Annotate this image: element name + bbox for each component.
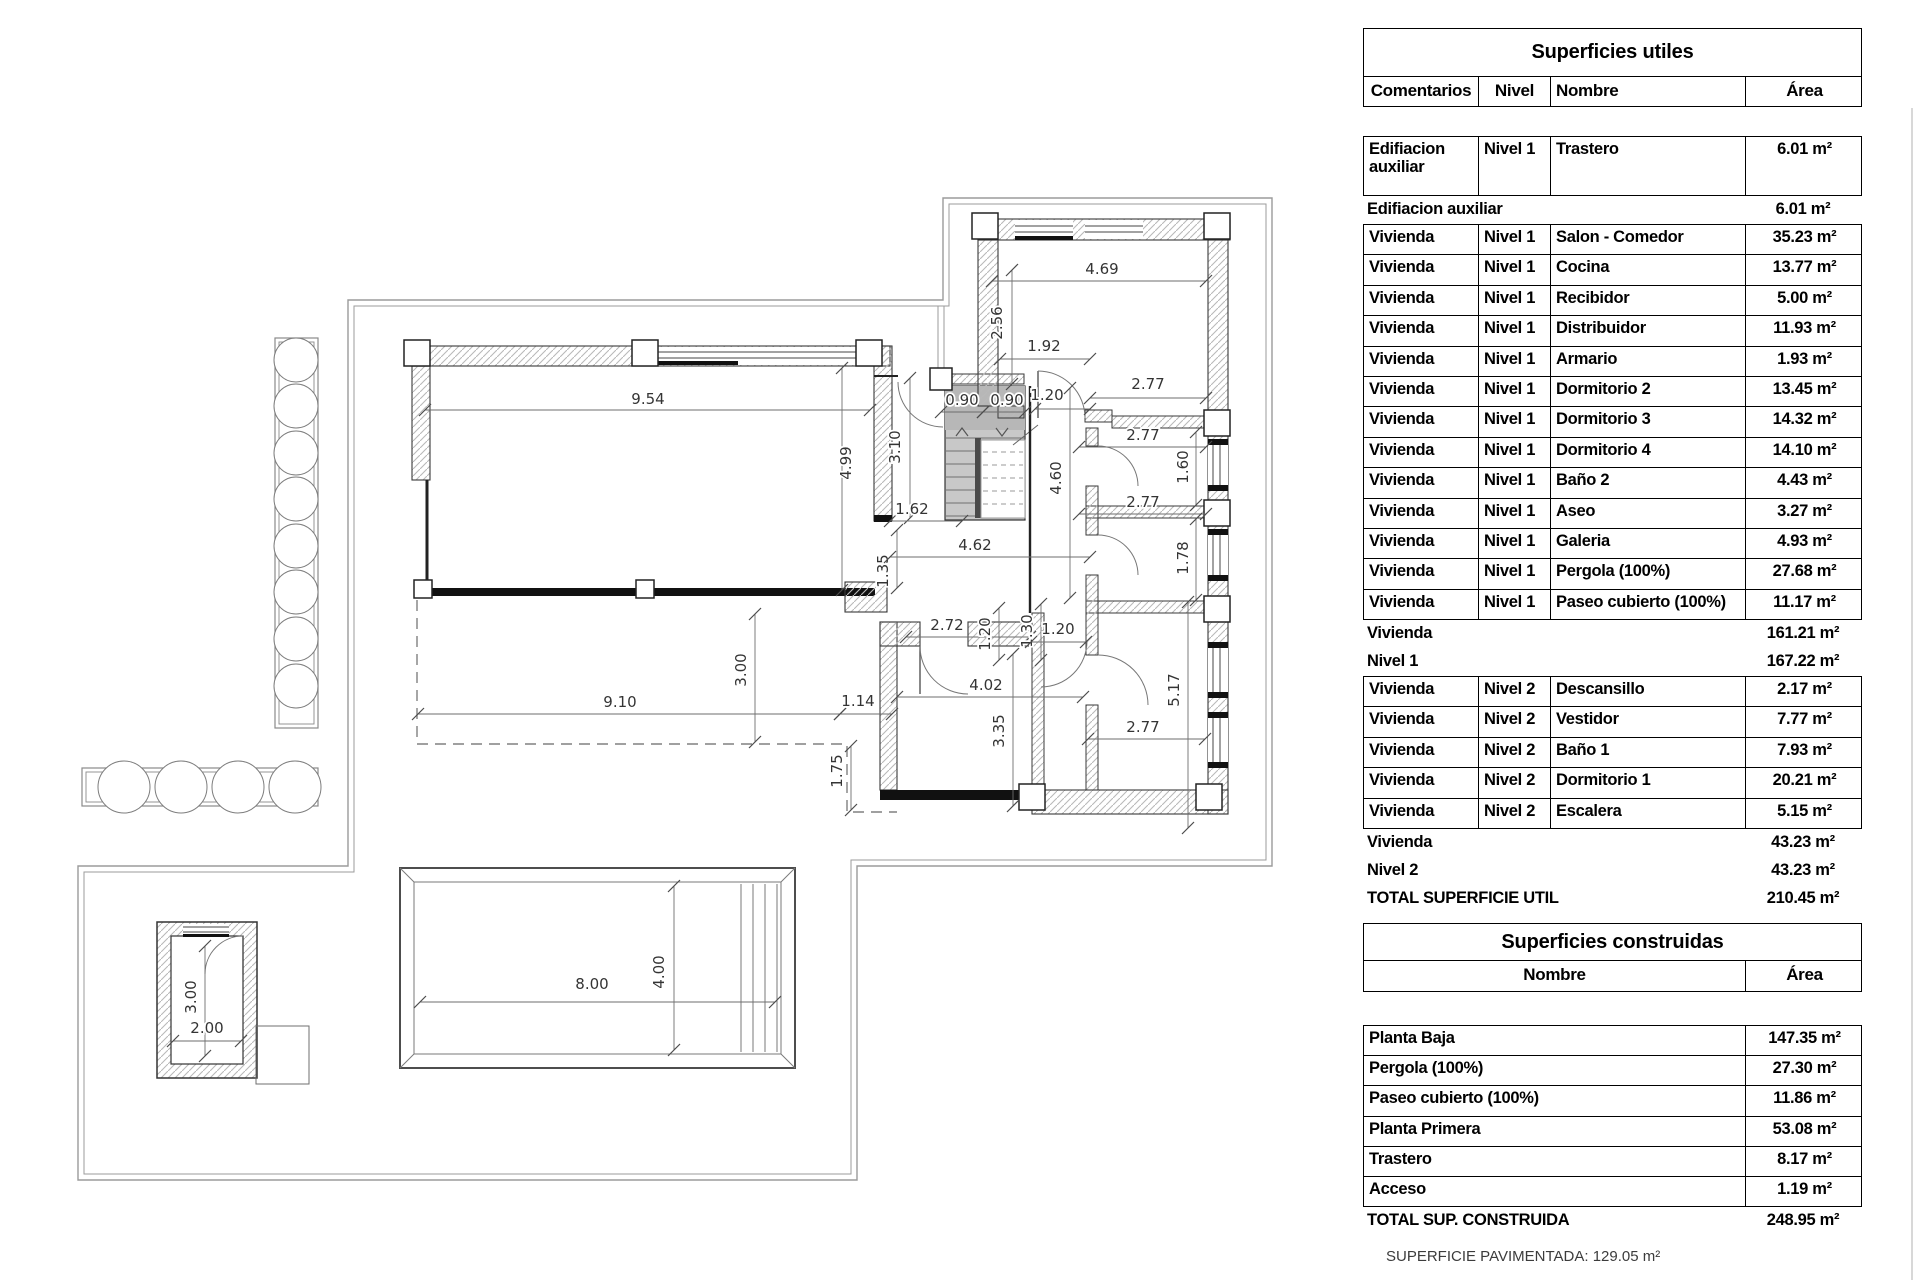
subtotal-row: Nivel 1167.22 m² — [1363, 648, 1862, 676]
table-cell: Vivienda — [1364, 738, 1478, 767]
table-cell: 20.21 m² — [1745, 768, 1863, 797]
table-cell: Vivienda — [1364, 499, 1478, 528]
dim-label: 2.00 — [190, 1019, 223, 1037]
subtotal-label: TOTAL SUPERFICIE UTIL — [1367, 889, 1559, 908]
table-cell: Dormitorio 2 — [1550, 377, 1745, 406]
table-block: Planta Baja147.35 m²Pergola (100%)27.30 … — [1363, 1025, 1862, 1207]
table-cell: Nivel 1 — [1478, 529, 1550, 558]
dim-label: 2.72 — [930, 616, 963, 634]
table-cell: 8.17 m² — [1745, 1147, 1863, 1176]
table-cell: Vivienda — [1364, 438, 1478, 467]
subtotal-value: 210.45 m² — [1744, 889, 1862, 908]
architectural-sheet: 9.544.993.101.621.354.620.900.901.202.56… — [0, 0, 1920, 1280]
table-cell: 7.93 m² — [1745, 738, 1863, 767]
table-cell: Nivel 1 — [1478, 590, 1550, 619]
subtotal-value: 248.95 m² — [1744, 1211, 1862, 1230]
dim-label: 1.20 — [1041, 620, 1074, 638]
pool-steps — [741, 884, 777, 1052]
subtotal-value: 43.23 m² — [1744, 861, 1862, 880]
column-header: Área — [1745, 961, 1863, 991]
dim-label: 3.00 — [182, 980, 200, 1013]
table-row: ViviendaNivel 2Dormitorio 120.21 m² — [1364, 767, 1861, 797]
table-cell: 14.32 m² — [1745, 407, 1863, 436]
table-cell: Dormitorio 1 — [1550, 768, 1745, 797]
dim-label: 1.30 — [1018, 614, 1036, 647]
dim-label: 2.56 — [988, 306, 1006, 339]
table-cell: Distribuidor — [1550, 316, 1745, 345]
table-cell: Nivel 1 — [1478, 499, 1550, 528]
subtotal-value: 167.22 m² — [1744, 652, 1862, 671]
dim-label: 2.77 — [1126, 426, 1159, 444]
table-cell: Vivienda — [1364, 590, 1478, 619]
table-cell: Vivienda — [1364, 799, 1478, 828]
table-row: ViviendaNivel 2Baño 17.93 m² — [1364, 737, 1861, 767]
dim-label: 4.00 — [650, 955, 668, 988]
table-cell: Nivel 1 — [1478, 137, 1550, 195]
dim-label: 2.77 — [1126, 493, 1159, 511]
column-header: Nombre — [1550, 77, 1745, 106]
table-cell: Vivienda — [1364, 407, 1478, 436]
table-row: ViviendaNivel 1Cocina13.77 m² — [1364, 254, 1861, 284]
table-cell: Aseo — [1550, 499, 1745, 528]
dim-label: 1.14 — [841, 692, 874, 710]
table-cell: Nivel 1 — [1478, 316, 1550, 345]
dim-label: 0.90 — [945, 391, 978, 409]
swimming-pool — [400, 868, 795, 1068]
table-cell: 147.35 m² — [1745, 1026, 1863, 1055]
planter-vertical — [274, 338, 318, 728]
table-cell: Dormitorio 4 — [1550, 438, 1745, 467]
table-cell: Nivel 1 — [1478, 255, 1550, 284]
table-cell: 5.15 m² — [1745, 799, 1863, 828]
dim-label: 3.00 — [732, 653, 750, 686]
dim-label: 3.10 — [886, 430, 904, 463]
dim-label: 4.60 — [1047, 461, 1065, 494]
table-cell: Pergola (100%) — [1550, 559, 1745, 588]
table-cell: Vivienda — [1364, 225, 1478, 254]
table-cell: 11.17 m² — [1745, 590, 1863, 619]
table-cell: Vivienda — [1364, 559, 1478, 588]
table-cell: 4.93 m² — [1745, 529, 1863, 558]
table-cell: Recibidor — [1550, 286, 1745, 315]
table-cell: Nivel 1 — [1478, 559, 1550, 588]
table-cell: Pergola (100%) — [1364, 1056, 1745, 1085]
table-cell: Vivienda — [1364, 377, 1478, 406]
dim-label: 1.60 — [1174, 450, 1192, 483]
table-cell: 1.19 m² — [1745, 1177, 1863, 1206]
table-cell: 27.30 m² — [1745, 1056, 1863, 1085]
subtotal-row: TOTAL SUP. CONSTRUIDA248.95 m² — [1363, 1207, 1862, 1237]
planter-horizontal — [82, 761, 321, 813]
subtotal-label: Vivienda — [1367, 624, 1432, 643]
table-cell: 35.23 m² — [1745, 225, 1863, 254]
table-row: ViviendaNivel 2Vestidor7.77 m² — [1364, 706, 1861, 736]
table-row: ViviendaNivel 1Aseo3.27 m² — [1364, 498, 1861, 528]
table-cell: Baño 2 — [1550, 468, 1745, 497]
table-cell: Vivienda — [1364, 316, 1478, 345]
table-cell: Trastero — [1550, 137, 1745, 195]
table-cell: Nivel 1 — [1478, 347, 1550, 376]
column-header: Nivel — [1478, 77, 1550, 106]
table-cell: Nivel 1 — [1478, 407, 1550, 436]
table-cell: Planta Primera — [1364, 1117, 1745, 1146]
table-row: ViviendaNivel 1Salon - Comedor35.23 m² — [1364, 225, 1861, 254]
table-cell: Nivel 2 — [1478, 677, 1550, 706]
dim-label: 2.77 — [1131, 375, 1164, 393]
column-header: Comentarios — [1364, 77, 1478, 106]
table-cell: 27.68 m² — [1745, 559, 1863, 588]
table-row: ViviendaNivel 1Dormitorio 213.45 m² — [1364, 376, 1861, 406]
table-cell: Vivienda — [1364, 768, 1478, 797]
table-cell: Vestidor — [1550, 707, 1745, 736]
dim-label: 4.02 — [969, 676, 1002, 694]
table-row: ViviendaNivel 1Galeria4.93 m² — [1364, 528, 1861, 558]
dim-label: 9.10 — [603, 693, 636, 711]
table-cell: Salon - Comedor — [1550, 225, 1745, 254]
auxiliary-building — [157, 922, 309, 1084]
table-cell: Trastero — [1364, 1147, 1745, 1176]
dim-label: 8.00 — [575, 975, 608, 993]
dim-label: 4.69 — [1085, 260, 1118, 278]
table-cell: Nivel 2 — [1478, 707, 1550, 736]
table-cell: 5.00 m² — [1745, 286, 1863, 315]
table-cell: Nivel 2 — [1478, 799, 1550, 828]
column-header: Nombre — [1364, 961, 1745, 991]
table-cell: Paseo cubierto (100%) — [1550, 590, 1745, 619]
table-cell: 3.27 m² — [1745, 499, 1863, 528]
dimension-annotations: 9.544.993.101.621.354.620.900.901.202.56… — [167, 260, 1212, 1062]
table-row: Pergola (100%)27.30 m² — [1364, 1055, 1861, 1085]
table-row: Paseo cubierto (100%)11.86 m² — [1364, 1085, 1861, 1115]
table-cell: Nivel 2 — [1478, 738, 1550, 767]
column-header: Área — [1745, 77, 1863, 106]
table-cell: Nivel 2 — [1478, 768, 1550, 797]
table-cell: 6.01 m² — [1745, 137, 1863, 195]
table-cell: Nivel 1 — [1478, 377, 1550, 406]
table-row: Trastero8.17 m² — [1364, 1146, 1861, 1176]
galeria-walls — [880, 613, 1228, 814]
table-title: Superficies utiles — [1363, 28, 1862, 77]
table-cell: 7.77 m² — [1745, 707, 1863, 736]
table-row: ViviendaNivel 2Escalera5.15 m² — [1364, 798, 1861, 828]
table-cell: Paseo cubierto (100%) — [1364, 1086, 1745, 1115]
table-cell: 1.93 m² — [1745, 347, 1863, 376]
table-row: ViviendaNivel 2Descansillo2.17 m² — [1364, 677, 1861, 706]
subtotal-label: Edifiacion auxiliar — [1367, 200, 1503, 219]
table-cell: Descansillo — [1550, 677, 1745, 706]
table-row: ViviendaNivel 1Recibidor5.00 m² — [1364, 285, 1861, 315]
dim-label: 2.77 — [1126, 718, 1159, 736]
dim-label: 1.35 — [874, 554, 892, 587]
table-cell: Nivel 1 — [1478, 438, 1550, 467]
table-row: Acceso1.19 m² — [1364, 1176, 1861, 1206]
table-cell: Escalera — [1550, 799, 1745, 828]
subtotal-row: Vivienda161.21 m² — [1363, 620, 1862, 648]
table-cell: Vivienda — [1364, 707, 1478, 736]
table-superficies-construidas: Superficies construidasNombreÁreaPlanta … — [1363, 923, 1862, 1237]
table-row: Edifiacion auxiliarNivel 1Trastero6.01 m… — [1364, 137, 1861, 195]
subtotal-value: 43.23 m² — [1744, 833, 1862, 852]
table-row: Planta Baja147.35 m² — [1364, 1026, 1861, 1055]
table-cell: 14.10 m² — [1745, 438, 1863, 467]
table-header-row: NombreÁrea — [1363, 961, 1862, 992]
subtotal-value: 6.01 m² — [1744, 200, 1862, 219]
table-row: Planta Primera53.08 m² — [1364, 1116, 1861, 1146]
table-row: ViviendaNivel 1Paseo cubierto (100%)11.1… — [1364, 589, 1861, 619]
paved-area-note: SUPERFICIE PAVIMENTADA: 129.05 m² — [1386, 1248, 1660, 1265]
living-room-walls — [404, 340, 892, 612]
table-title: Superficies construidas — [1363, 923, 1862, 961]
table-cell: Acceso — [1364, 1177, 1745, 1206]
subtotal-label: TOTAL SUP. CONSTRUIDA — [1367, 1211, 1569, 1230]
table-cell: 11.93 m² — [1745, 316, 1863, 345]
table-cell: Edifiacion auxiliar — [1364, 137, 1478, 195]
table-row: ViviendaNivel 1Armario1.93 m² — [1364, 346, 1861, 376]
table-cell: Vivienda — [1364, 255, 1478, 284]
table-block: Edifiacion auxiliarNivel 1Trastero6.01 m… — [1363, 136, 1862, 196]
subtotal-label: Vivienda — [1367, 833, 1432, 852]
dim-label: 0.90 — [990, 391, 1023, 409]
subtotal-row: Nivel 243.23 m² — [1363, 857, 1862, 885]
dim-label: 1.20 — [976, 617, 994, 650]
dim-label: 4.99 — [837, 446, 855, 479]
table-cell: 4.43 m² — [1745, 468, 1863, 497]
dim-label: 9.54 — [631, 390, 664, 408]
spacer — [1363, 107, 1862, 136]
table-cell: 13.45 m² — [1745, 377, 1863, 406]
table-cell: 53.08 m² — [1745, 1117, 1863, 1146]
spacer — [1363, 992, 1862, 1025]
subtotal-value: 161.21 m² — [1744, 624, 1862, 643]
table-superficies-utiles: Superficies utilesComentariosNivelNombre… — [1363, 28, 1862, 913]
dim-label: 1.62 — [895, 500, 928, 518]
table-cell: 13.77 m² — [1745, 255, 1863, 284]
subtotal-row: Vivienda43.23 m² — [1363, 829, 1862, 857]
table-cell: Planta Baja — [1364, 1026, 1745, 1055]
table-cell: 2.17 m² — [1745, 677, 1863, 706]
table-cell: Vivienda — [1364, 286, 1478, 315]
subtotal-row: TOTAL SUPERFICIE UTIL210.45 m² — [1363, 885, 1862, 913]
pergola-outline — [417, 600, 897, 812]
table-cell: Dormitorio 3 — [1550, 407, 1745, 436]
table-row: ViviendaNivel 1Pergola (100%)27.68 m² — [1364, 558, 1861, 588]
table-cell: Armario — [1550, 347, 1745, 376]
table-cell: Baño 1 — [1550, 738, 1745, 767]
table-cell: 11.86 m² — [1745, 1086, 1863, 1115]
dim-label: 5.17 — [1165, 673, 1183, 706]
table-row: ViviendaNivel 1Dormitorio 314.32 m² — [1364, 406, 1861, 436]
table-cell: Nivel 1 — [1478, 225, 1550, 254]
subtotal-row: Edifiacion auxiliar6.01 m² — [1363, 196, 1862, 224]
table-block: ViviendaNivel 2Descansillo2.17 m²Viviend… — [1363, 676, 1862, 829]
table-row: ViviendaNivel 1Baño 24.43 m² — [1364, 467, 1861, 497]
table-cell: Galeria — [1550, 529, 1745, 558]
table-cell: Vivienda — [1364, 529, 1478, 558]
table-cell: Vivienda — [1364, 677, 1478, 706]
table-block: ViviendaNivel 1Salon - Comedor35.23 m²Vi… — [1363, 224, 1862, 620]
table-cell: Vivienda — [1364, 468, 1478, 497]
table-header-row: ComentariosNivelNombreÁrea — [1363, 77, 1862, 107]
dim-label: 3.35 — [990, 714, 1008, 747]
subtotal-label: Nivel 1 — [1367, 652, 1418, 671]
table-row: ViviendaNivel 1Distribuidor11.93 m² — [1364, 315, 1861, 345]
dim-label: 1.78 — [1174, 541, 1192, 574]
subtotal-label: Nivel 2 — [1367, 861, 1418, 880]
dim-label: 1.92 — [1027, 337, 1060, 355]
table-cell: Cocina — [1550, 255, 1745, 284]
table-cell: Vivienda — [1364, 347, 1478, 376]
table-cell: Nivel 1 — [1478, 468, 1550, 497]
table-row: ViviendaNivel 1Dormitorio 414.10 m² — [1364, 437, 1861, 467]
table-cell: Nivel 1 — [1478, 286, 1550, 315]
dim-label: 4.62 — [958, 536, 991, 554]
dim-label: 1.75 — [828, 754, 846, 787]
dim-label: 1.20 — [1030, 386, 1063, 404]
